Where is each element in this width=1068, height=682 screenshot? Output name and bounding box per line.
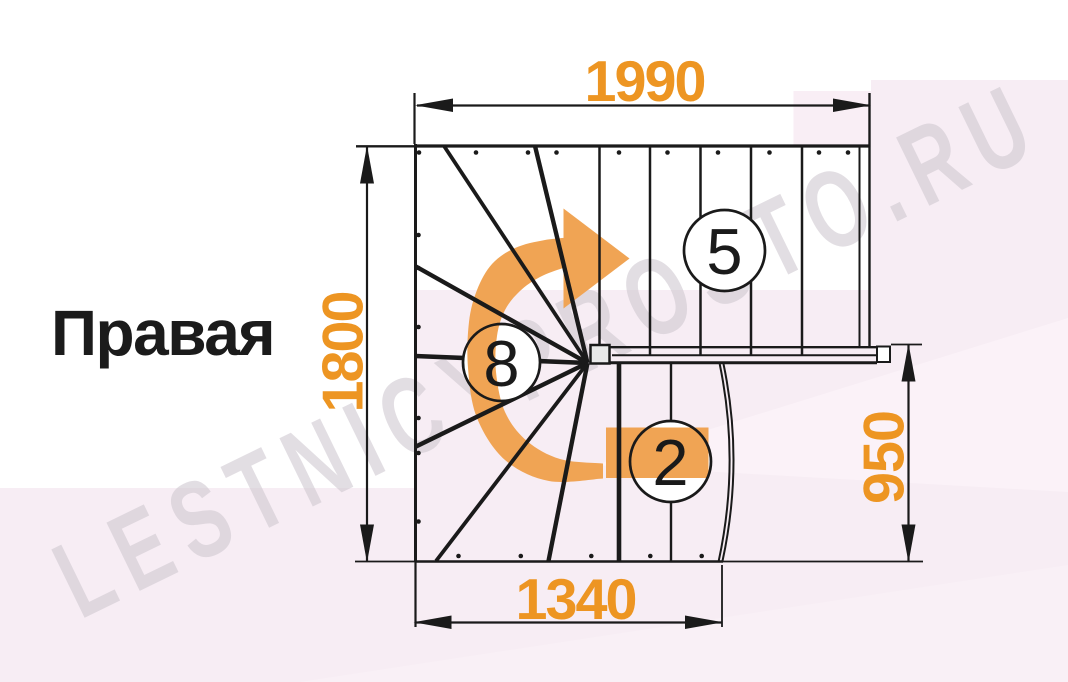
svg-text:2: 2 (652, 426, 688, 499)
svg-text:1340: 1340 (516, 568, 636, 632)
svg-text:1800: 1800 (312, 293, 376, 413)
svg-text:8: 8 (483, 327, 519, 400)
svg-text:950: 950 (853, 411, 917, 504)
svg-text:5: 5 (706, 215, 742, 288)
svg-text:Правая: Правая (51, 297, 274, 369)
svg-text:1990: 1990 (585, 50, 705, 114)
